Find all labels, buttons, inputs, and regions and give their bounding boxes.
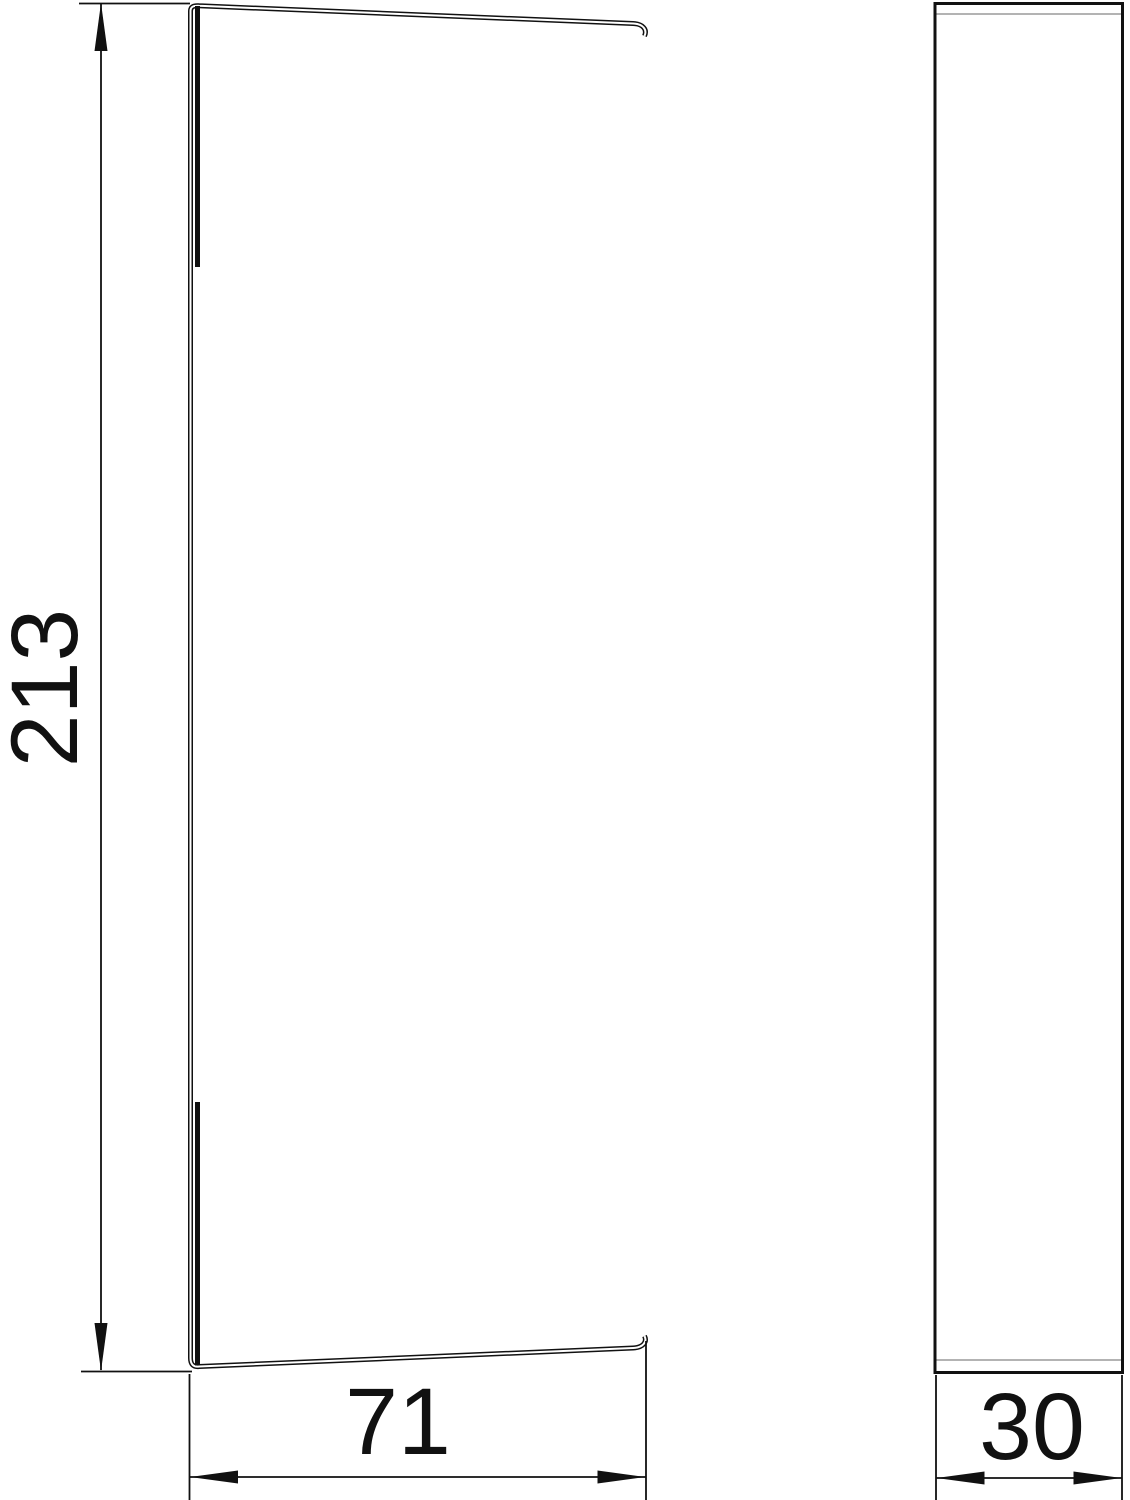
side-view-outline xyxy=(935,4,1123,1373)
arrow-up-icon xyxy=(95,3,108,51)
width-dimension-label: 71 xyxy=(248,1372,548,1472)
arrow-right-icon xyxy=(598,1471,646,1484)
arrow-left-icon xyxy=(190,1471,238,1484)
profile-sheet-inner-gap xyxy=(191,6,646,1367)
drawing-linework xyxy=(0,0,1130,1500)
drawing-canvas: 213 71 30 xyxy=(0,0,1130,1500)
arrow-down-icon xyxy=(95,1323,108,1371)
depth-dimension-label: 30 xyxy=(882,1377,1130,1477)
front-view-profile xyxy=(191,6,646,1367)
height-dimension-label: 213 xyxy=(0,538,95,838)
profile-sheet-outline xyxy=(191,6,646,1367)
side-view-body xyxy=(935,4,1123,1373)
